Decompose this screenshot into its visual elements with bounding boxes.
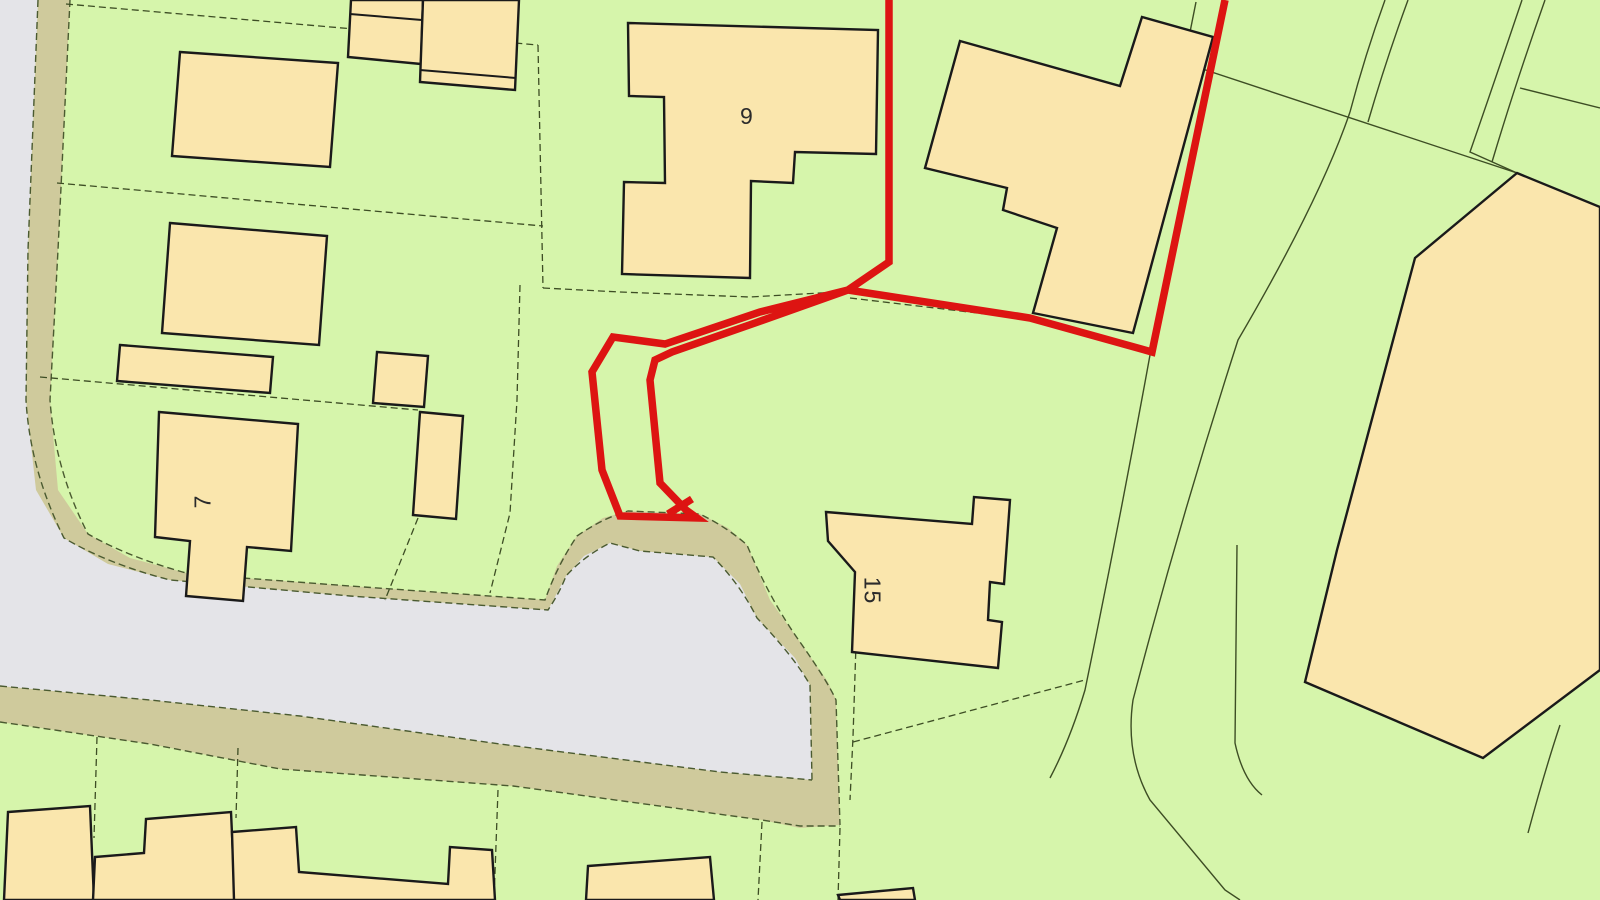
- house-number-label-9: 9: [740, 103, 754, 130]
- building: [4, 806, 94, 900]
- building-number-15: [826, 497, 1010, 668]
- building: [348, 0, 423, 64]
- house-number-label-15: 15: [858, 577, 885, 605]
- map-canvas: [0, 0, 1600, 900]
- building: [162, 223, 327, 345]
- building: [172, 52, 338, 167]
- building-outbuilding: [413, 412, 463, 519]
- building-outbuilding: [373, 352, 428, 407]
- site-plan-map[interactable]: 9 7 15: [0, 0, 1600, 900]
- house-number-label-7: 7: [189, 495, 216, 509]
